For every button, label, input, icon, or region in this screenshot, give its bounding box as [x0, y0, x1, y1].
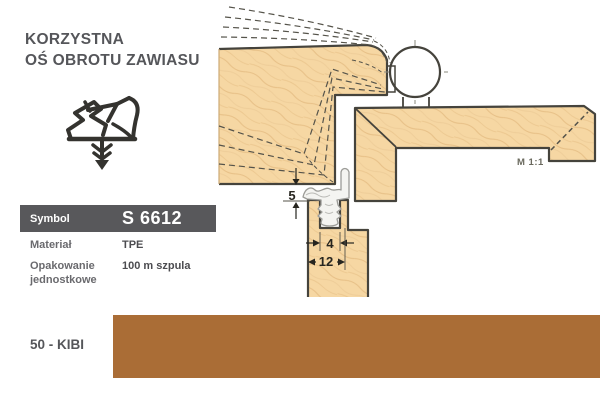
color-code-label: 50 - KIBI	[30, 337, 84, 352]
product-spec-table: Symbol S 6612 Materiał TPE Opakowanie je…	[20, 205, 216, 287]
page-title: KORZYSTNA OŚ OBROTU ZAWIASU	[25, 30, 200, 72]
hinge-leaf-frame	[403, 97, 429, 107]
frame-jamb-section	[355, 106, 595, 201]
dim-groove-label: 4	[326, 236, 334, 251]
color-swatch	[113, 315, 600, 378]
material-value: TPE	[122, 239, 143, 253]
symbol-label: Symbol	[20, 213, 122, 225]
datasheet-page: 5 4 12 M 1:1 KORZYSTNA OŚ OBROTU ZAWIASU	[0, 0, 600, 400]
spec-row-packaging: Opakowanie jednostkowe 100 m szpula	[20, 260, 216, 288]
material-label: Materiał	[20, 239, 122, 253]
packaging-value: 100 m szpula	[122, 260, 190, 288]
seal-profile-icon	[60, 92, 152, 178]
scale-label: M 1:1	[517, 157, 544, 168]
spec-row-material: Materiał TPE	[20, 239, 216, 253]
page-title-line2: OŚ OBROTU ZAWIASU	[25, 51, 200, 72]
spec-row-symbol: Symbol S 6612	[20, 205, 216, 232]
page-title-line1: KORZYSTNA	[25, 30, 200, 51]
packaging-label: Opakowanie jednostkowe	[20, 260, 122, 288]
dim-gap-label: 5	[288, 188, 295, 203]
symbol-value: S 6612	[122, 208, 182, 229]
hinge-knuckle	[384, 40, 448, 107]
dim-overall-label: 12	[319, 254, 333, 269]
